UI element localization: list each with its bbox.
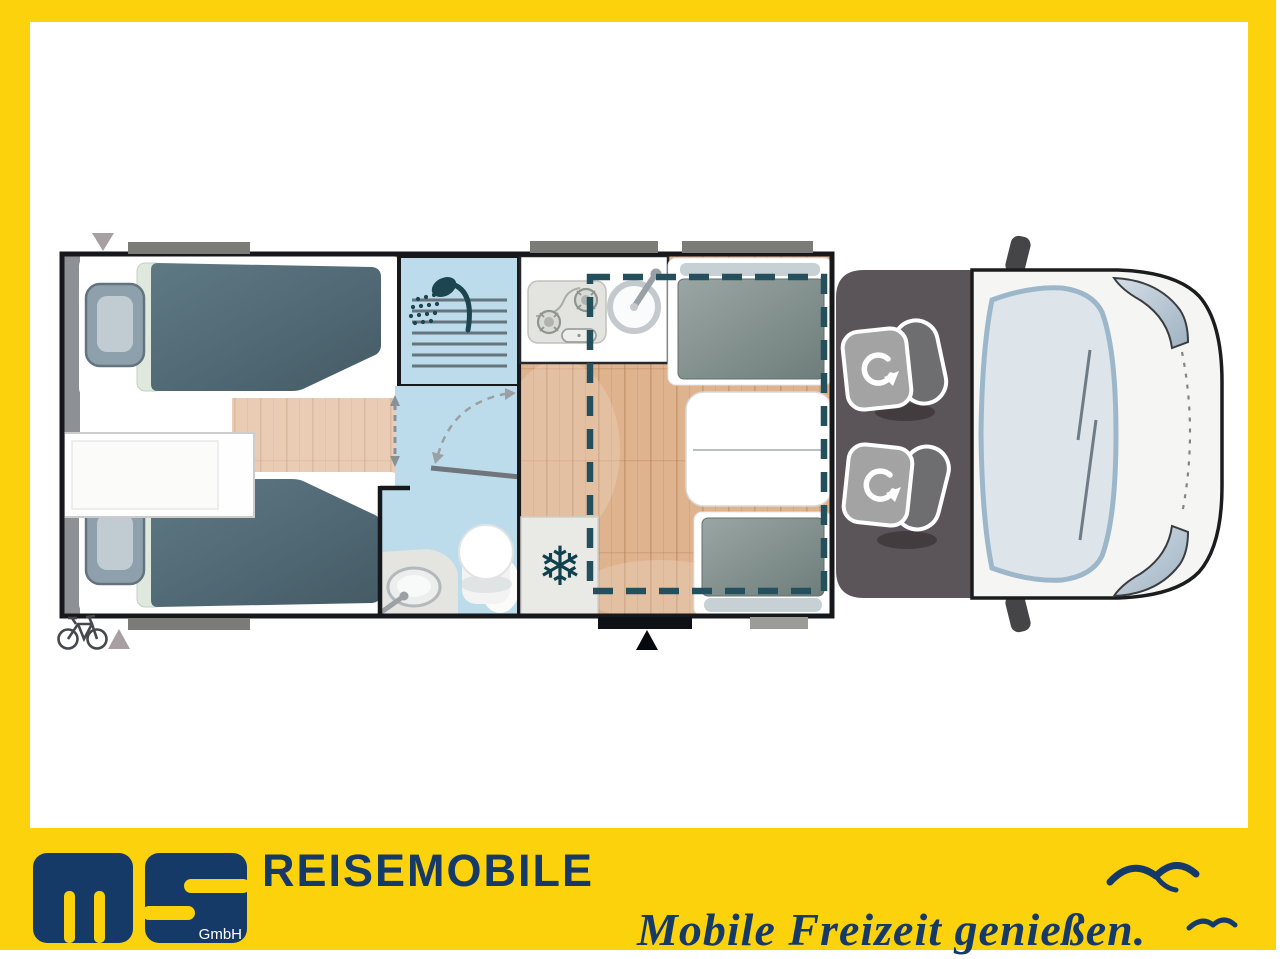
window-bar [750, 617, 808, 629]
logo-s: GmbH [142, 853, 250, 943]
window-bar [682, 241, 813, 253]
fridge: ❄ [521, 517, 598, 615]
window-bar [128, 242, 250, 254]
dinette-bench-rear [694, 512, 832, 616]
washroom [380, 386, 520, 615]
windshield [981, 288, 1116, 581]
seat-cushion [842, 443, 914, 527]
shower-tray-slats [412, 300, 507, 366]
brand-gmbh: GmbH [199, 926, 242, 943]
floorplan-graphic: ❄ [0, 0, 1280, 959]
pillow-highlight [97, 296, 133, 352]
toilet [459, 525, 513, 604]
window-bar [530, 241, 658, 253]
cushion [678, 279, 824, 379]
dinette-table [686, 392, 832, 506]
stove [528, 281, 606, 343]
headrest-bar [704, 598, 822, 612]
right-margin [1276, 0, 1280, 959]
pillow-highlight [97, 514, 133, 570]
bed-top [79, 256, 401, 398]
seat-cushion [841, 327, 913, 411]
brand-wordmark: REISEMOBILE [262, 845, 594, 896]
dealer-floorplan-page: ❄ [0, 0, 1280, 959]
kitchen-block [520, 256, 668, 363]
shower-room [399, 256, 519, 386]
window-bar [128, 618, 250, 630]
vehicle-front [972, 234, 1222, 634]
snowflake-icon: ❄ [537, 535, 582, 598]
brand-tagline: Mobile Freizeit genießen. [636, 904, 1146, 955]
nightstand [64, 433, 254, 517]
entry-door [598, 617, 692, 629]
cushion [702, 518, 824, 596]
logo-m [33, 853, 133, 943]
